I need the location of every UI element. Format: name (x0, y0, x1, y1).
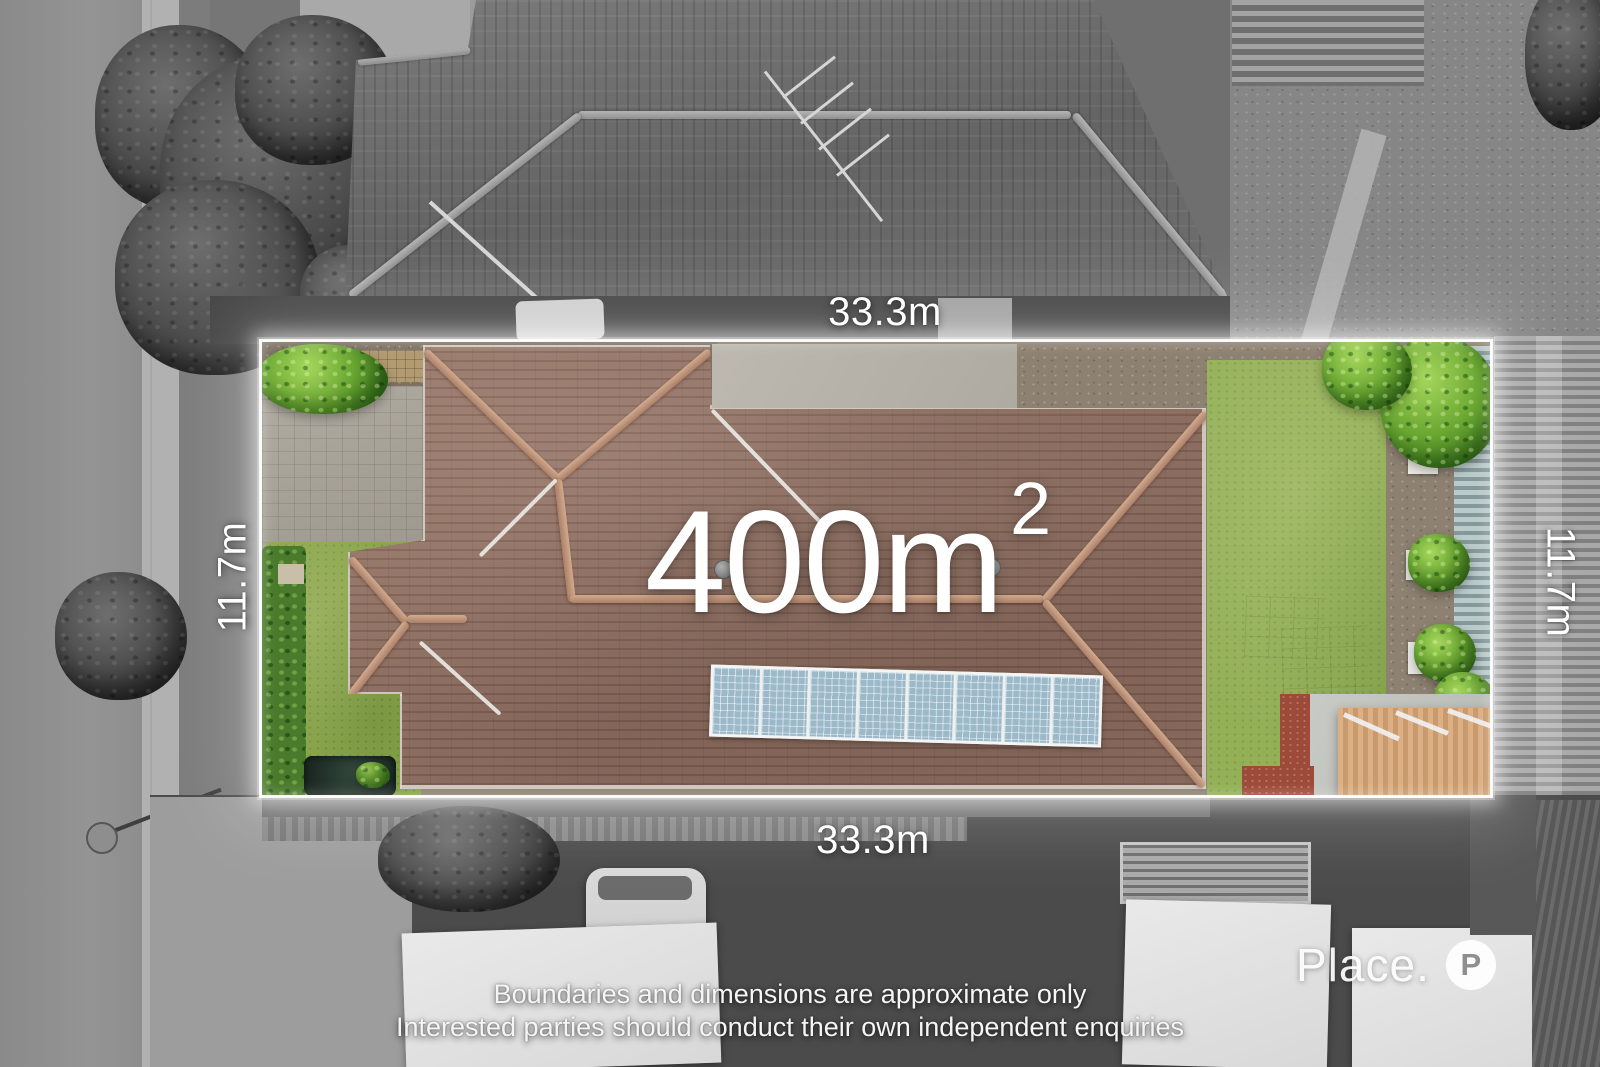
disclaimer: Boundaries and dimensions are approximat… (396, 978, 1184, 1045)
disclaimer-line-1: Boundaries and dimensions are approximat… (396, 978, 1184, 1011)
louver-awning (1120, 842, 1311, 904)
area-label: 400m 2 (645, 489, 1051, 635)
place-logo-letter: P (1461, 947, 1482, 983)
tree (378, 806, 560, 912)
pergola-roof (1232, 0, 1424, 86)
roof-hip-ridge (348, 112, 583, 299)
light-pole-base (86, 822, 118, 854)
dimension-label-right: 11.7m (1538, 527, 1583, 638)
aerial-site-photo: 33.3m 33.3m 11.7m 11.7m 400m 2 Boundarie… (0, 0, 1600, 1067)
place-logo: Place. P (1296, 938, 1496, 992)
path-patch (938, 298, 1012, 342)
dimension-label-top: 33.3m (828, 290, 942, 335)
street-tree (55, 572, 187, 700)
timber-wall (1532, 800, 1600, 1067)
area-exponent: 2 (1010, 472, 1051, 546)
area-value: 400m (645, 489, 1002, 635)
van-windshield (598, 876, 692, 900)
place-logo-text: Place. (1296, 938, 1430, 992)
disclaimer-line-2: Interested parties should conduct their … (396, 1011, 1184, 1044)
dimension-label-left: 11.7m (211, 522, 256, 633)
roof-valley (429, 201, 543, 304)
parked-car (515, 298, 604, 341)
dimension-label-bottom: 33.3m (816, 818, 930, 863)
tv-antenna (755, 60, 895, 220)
dark-wall (1470, 795, 1536, 935)
roof-hip-ridge (1071, 111, 1230, 301)
house-eave-strip (262, 795, 1210, 817)
place-logo-icon: P (1446, 940, 1496, 990)
